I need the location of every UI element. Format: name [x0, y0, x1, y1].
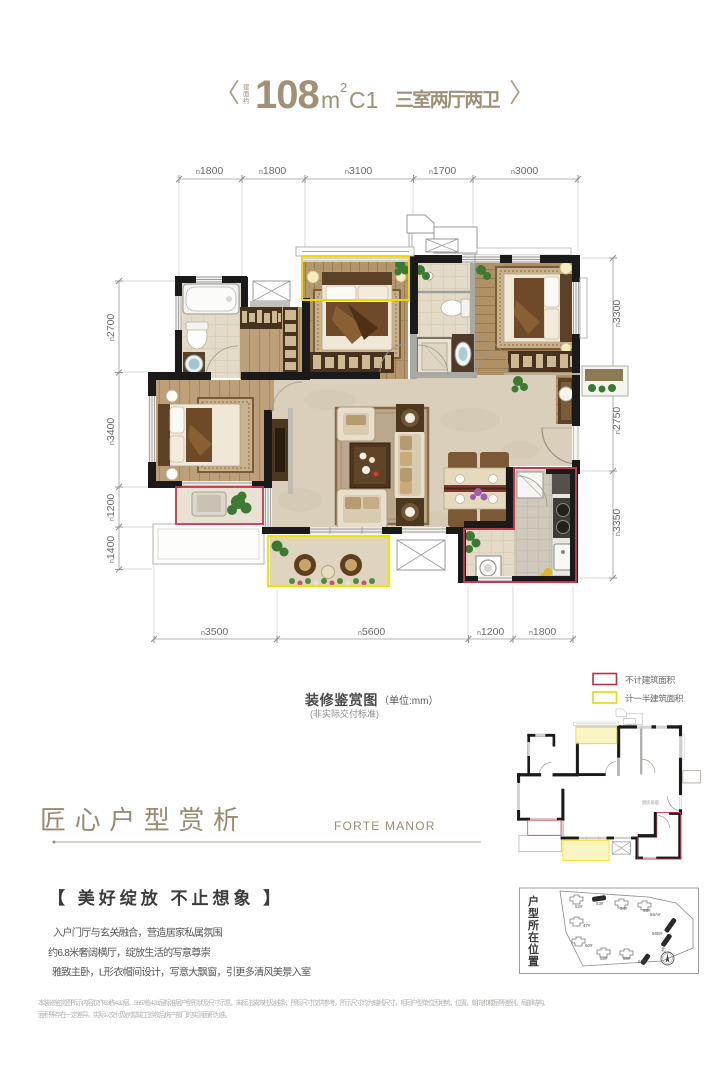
svg-text:C1: C1: [349, 87, 378, 113]
svg-text:n3300: n3300: [611, 300, 623, 327]
svg-text:n3100: n3100: [345, 165, 372, 177]
svg-text:FORTE MANOR: FORTE MANOR: [334, 819, 436, 833]
svg-text:户: 户: [528, 894, 539, 908]
svg-text:58#: 58#: [623, 956, 631, 961]
svg-text:位: 位: [528, 942, 539, 956]
svg-text:约: 约: [243, 96, 249, 105]
svg-text:(非实际交付标准): (非实际交付标准): [310, 708, 379, 719]
svg-text:n5600: n5600: [358, 626, 385, 638]
svg-text:【 美好绽放 不止想象 】: 【 美好绽放 不止想象 】: [48, 888, 284, 908]
svg-text:不计建筑面积: 不计建筑面积: [625, 674, 675, 685]
svg-text:北: 北: [661, 946, 666, 953]
svg-text:n3350: n3350: [611, 509, 623, 536]
svg-text:n2700: n2700: [105, 314, 117, 341]
svg-text:n2750: n2750: [611, 407, 623, 434]
svg-text:53#: 53#: [596, 901, 604, 906]
svg-text:型: 型: [528, 906, 539, 920]
svg-text:面: 面: [243, 90, 250, 98]
svg-text:匠心户型赏析: 匠心户型赏析: [40, 805, 248, 835]
svg-text:面积等存在一定差异，实际以交付及房屋竣工验收后房产部门的实测: 面积等存在一定差异，实际以交付及房屋竣工验收后房产部门的实测面积为准。: [38, 1010, 230, 1019]
svg-text:三室两厅两卫: 三室两厅两卫: [395, 88, 501, 111]
svg-text:56B#: 56B#: [652, 931, 663, 936]
svg-text:57#: 57#: [638, 959, 646, 964]
svg-text:〈: 〈: [214, 78, 240, 108]
svg-text:47#: 47#: [583, 923, 591, 928]
svg-text:108: 108: [255, 73, 319, 117]
svg-text:〉: 〉: [509, 78, 535, 108]
svg-text:（单位:mm）: （单位:mm）: [379, 694, 438, 707]
svg-text:所: 所: [528, 918, 539, 932]
svg-text:n1400: n1400: [105, 536, 117, 563]
svg-text:n3000: n3000: [511, 165, 538, 177]
svg-text:建: 建: [243, 82, 250, 91]
svg-text:厨房排烟: 厨房排烟: [642, 799, 659, 806]
svg-text:置: 置: [528, 955, 539, 968]
svg-text:2: 2: [340, 80, 347, 95]
svg-text:n1200: n1200: [105, 494, 117, 521]
svg-text:装修鉴赏图: 装修鉴赏图: [304, 692, 378, 708]
svg-text:计一半建筑面积: 计一半建筑面积: [625, 693, 684, 704]
svg-text:59#: 59#: [600, 956, 608, 961]
svg-text:在: 在: [528, 930, 539, 944]
svg-text:约6.8米奢阔横厅，绽放生活的写意尊崇: 约6.8米奢阔横厅，绽放生活的写意尊崇: [48, 946, 211, 959]
svg-text:雅致主卧，L形衣帽间设计，写意大飘窗，引更多清风美景入室: 雅致主卧，L形衣帽间设计，写意大飘窗，引更多清风美景入室: [52, 966, 311, 979]
svg-text:52#: 52#: [575, 904, 583, 909]
svg-text:m: m: [321, 87, 340, 113]
svg-text:n3500: n3500: [201, 626, 228, 638]
svg-text:60#: 60#: [585, 943, 593, 948]
svg-text:入户门厅与玄关融合，营造居家私属氛围: 入户门厅与玄关融合，营造居家私属氛围: [53, 926, 223, 939]
svg-text:n1800: n1800: [196, 165, 223, 177]
svg-text:56A#: 56A#: [650, 912, 661, 917]
svg-text:n1800: n1800: [529, 626, 556, 638]
svg-text:n1200: n1200: [477, 626, 504, 638]
svg-text:54#: 54#: [620, 906, 628, 911]
svg-text:n3400: n3400: [105, 418, 117, 445]
svg-text:本装修鉴赏图所示内容仅作53栋4-32层、56/57栋4-3: 本装修鉴赏图所示内容仅作53栋4-32层、56/57栋4-31层标准层户型形状及…: [38, 998, 548, 1007]
svg-text:n1800: n1800: [259, 165, 286, 177]
svg-text:n1700: n1700: [429, 165, 456, 177]
